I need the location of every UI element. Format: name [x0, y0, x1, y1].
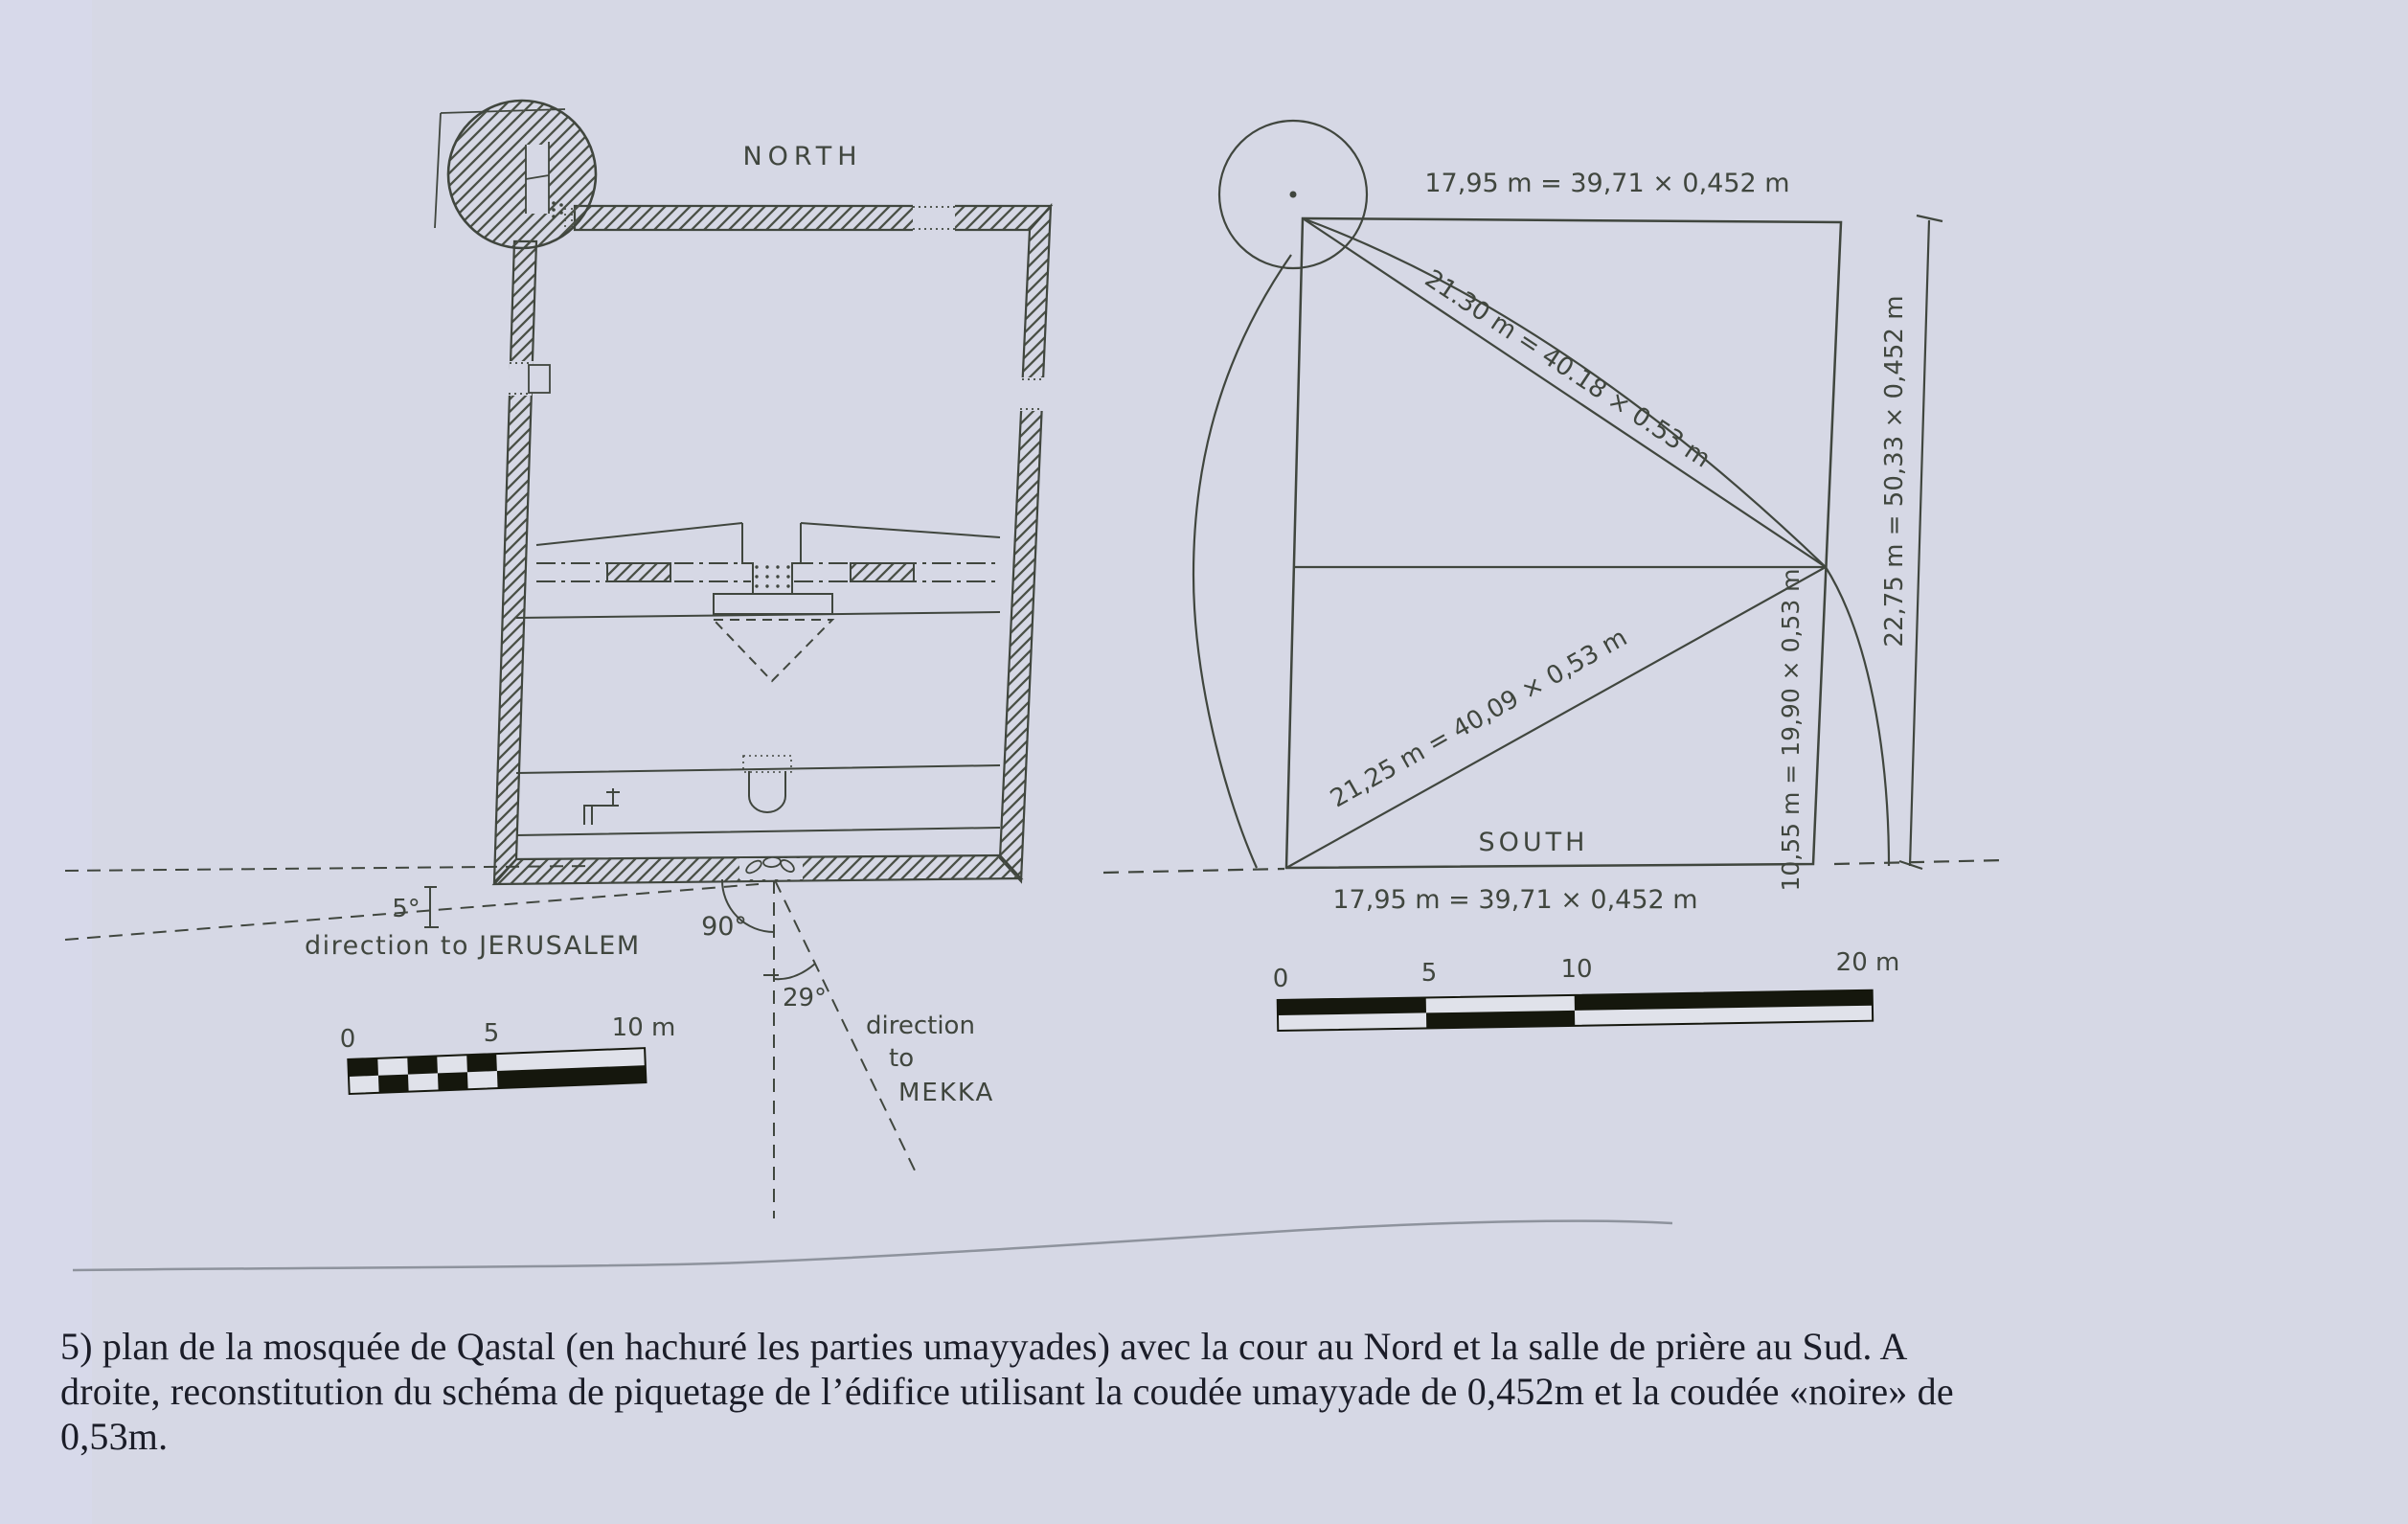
- east-door-gap: [1019, 377, 1045, 411]
- scanned-figure-page: 5° direction to JERUSALEM 90° 29° direct…: [0, 0, 2408, 1524]
- scheme-scale-10: 10: [1560, 955, 1592, 984]
- tower-circle: [448, 101, 596, 248]
- scheme-west-compass-arc: [1193, 255, 1291, 868]
- plan-interior: [516, 523, 1000, 879]
- scheme-right-overall-label: 22,75 m = 50,33 × 0,452 m: [1880, 295, 1909, 647]
- plan-walls: [494, 204, 1051, 884]
- jerusalem-label: direction to JERUSALEM: [305, 931, 641, 961]
- scheme-upper-diagonal-label: 21.30 m = 40.18 × 0.53 m: [1420, 264, 1715, 474]
- scheme-scale-5: 5: [1421, 959, 1438, 988]
- mihrab-niche: [743, 756, 791, 812]
- scheme-scale-0: 0: [1273, 965, 1289, 993]
- west-door-gap: [508, 361, 550, 396]
- five-degree-label: 5°: [392, 895, 420, 923]
- scheme-scale-20: 20 m: [1836, 948, 1900, 977]
- qibla-ornament-leaves: [739, 856, 803, 879]
- central-gate-piers: [742, 523, 801, 594]
- north-wall: [575, 206, 1051, 230]
- 29-degree-label: 29°: [783, 984, 827, 1012]
- scheme-bottom-dimension: 17,95 m = 39,71 × 0,452 m: [1332, 885, 1697, 915]
- caption-line-2: droite, reconstitution du schéma de piqu…: [60, 1369, 2378, 1414]
- plan-scale-0: 0: [340, 1025, 356, 1054]
- scheme-lower-diagonal: [1286, 567, 1826, 868]
- east-wall: [1000, 206, 1051, 881]
- mekka-label-3: MEKKA: [898, 1079, 994, 1107]
- pier-bar-west: [607, 563, 670, 581]
- north-label: NORTH: [742, 142, 862, 171]
- pier-bar-east: [851, 563, 914, 581]
- scheme-scalebar: 0 5 10 20 m: [1273, 948, 1900, 1031]
- caption-line-3: 0,53m.: [60, 1414, 2378, 1459]
- setting-out-scheme: 17,95 m = 39,71 × 0,452 m 21.30 m = 40.1…: [1103, 121, 2004, 1031]
- scheme-upper-diagonal: [1303, 218, 1826, 567]
- north-door-gap: [913, 204, 955, 232]
- scheme-lower-diagonal-label: 21,25 m = 40,09 × 0,53 m: [1326, 624, 1632, 814]
- caption-line-1: 5) plan de la mosquée de Qastal (en hach…: [60, 1324, 2378, 1369]
- portico-roof-lines: [536, 523, 1000, 545]
- five-degree-bracket: [424, 887, 439, 927]
- 29-degree-arc: [763, 964, 815, 979]
- scheme-scalebar-bar: [1278, 990, 1873, 1031]
- ninety-degree-label: 90°: [701, 912, 747, 942]
- figure-drawing: 5° direction to JERUSALEM 90° 29° direct…: [0, 0, 2408, 1524]
- dashed-triangle: [714, 620, 832, 681]
- plan-scalebar: 0 5 10 m: [340, 1013, 676, 1094]
- orientation-annotations: 5° direction to JERUSALEM 90° 29° direct…: [65, 866, 994, 1218]
- plan-scale-10: 10 m: [612, 1013, 676, 1042]
- gate-pedestal: [714, 594, 832, 614]
- gate-dotted-grid: [755, 565, 789, 587]
- west-wall: [494, 241, 536, 882]
- south-label: SOUTH: [1479, 828, 1589, 857]
- mekka-label-1: direction: [866, 1012, 975, 1040]
- plan-scalebar-bar: [348, 1048, 646, 1094]
- plan-scale-5: 5: [484, 1019, 500, 1048]
- inset-page-edge: [73, 1221, 1672, 1270]
- prayer-hall-lines: [516, 765, 1000, 835]
- scheme-top-dimension: 17,95 m = 39,71 × 0,452 m: [1424, 169, 1789, 198]
- mosque-plan: 5° direction to JERUSALEM 90° 29° direct…: [65, 101, 1051, 1218]
- mekka-label-2: to: [889, 1044, 914, 1073]
- minbar-symbol: [584, 788, 620, 825]
- corner-tower: [448, 101, 596, 248]
- scheme-right-segment-label: 10,55 m = 19,90 × 0,53 m: [1777, 568, 1805, 891]
